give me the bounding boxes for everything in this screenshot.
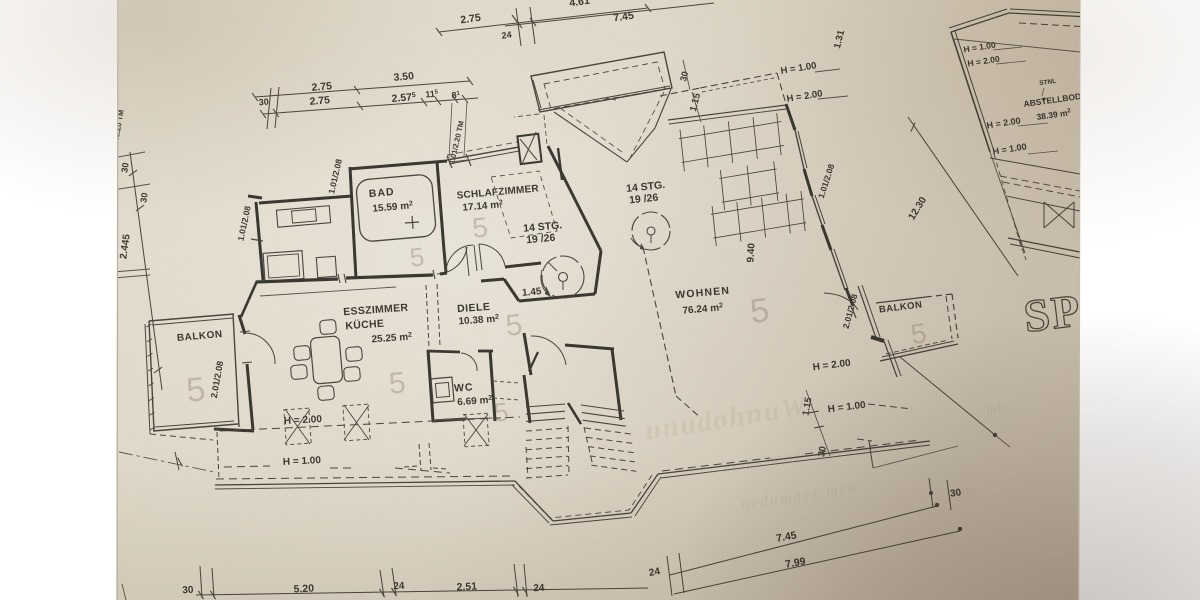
- svg-text:5: 5: [184, 370, 207, 410]
- svg-text:24: 24: [393, 581, 405, 593]
- svg-text:2.51: 2.51: [456, 580, 477, 593]
- svg-text:5.20: 5.20: [293, 582, 314, 595]
- svg-text:2.75: 2.75: [311, 80, 333, 94]
- svg-text:1.45: 1.45: [522, 286, 543, 299]
- svg-text:DIELE: DIELE: [457, 301, 491, 315]
- svg-text:WC: WC: [454, 381, 474, 394]
- svg-text:24: 24: [501, 29, 512, 40]
- svg-text:2.75: 2.75: [309, 94, 331, 108]
- svg-text:30: 30: [119, 162, 130, 173]
- svg-text:5: 5: [504, 308, 524, 343]
- svg-text:30: 30: [182, 585, 194, 597]
- svg-text:30: 30: [258, 97, 269, 108]
- svg-text:30: 30: [949, 487, 962, 500]
- svg-text:30: 30: [138, 192, 149, 203]
- svg-text:19 /26: 19 /26: [526, 232, 556, 247]
- svg-text:KÜCHE: KÜCHE: [345, 317, 385, 333]
- svg-text:24: 24: [533, 583, 545, 595]
- svg-text:H = 1.00: H = 1.00: [283, 455, 322, 468]
- svg-text:3.50: 3.50: [393, 70, 415, 84]
- svg-text:BAD: BAD: [368, 186, 395, 200]
- svg-text:5: 5: [471, 211, 490, 243]
- svg-text:9.40: 9.40: [745, 242, 757, 263]
- svg-text:5: 5: [387, 366, 407, 400]
